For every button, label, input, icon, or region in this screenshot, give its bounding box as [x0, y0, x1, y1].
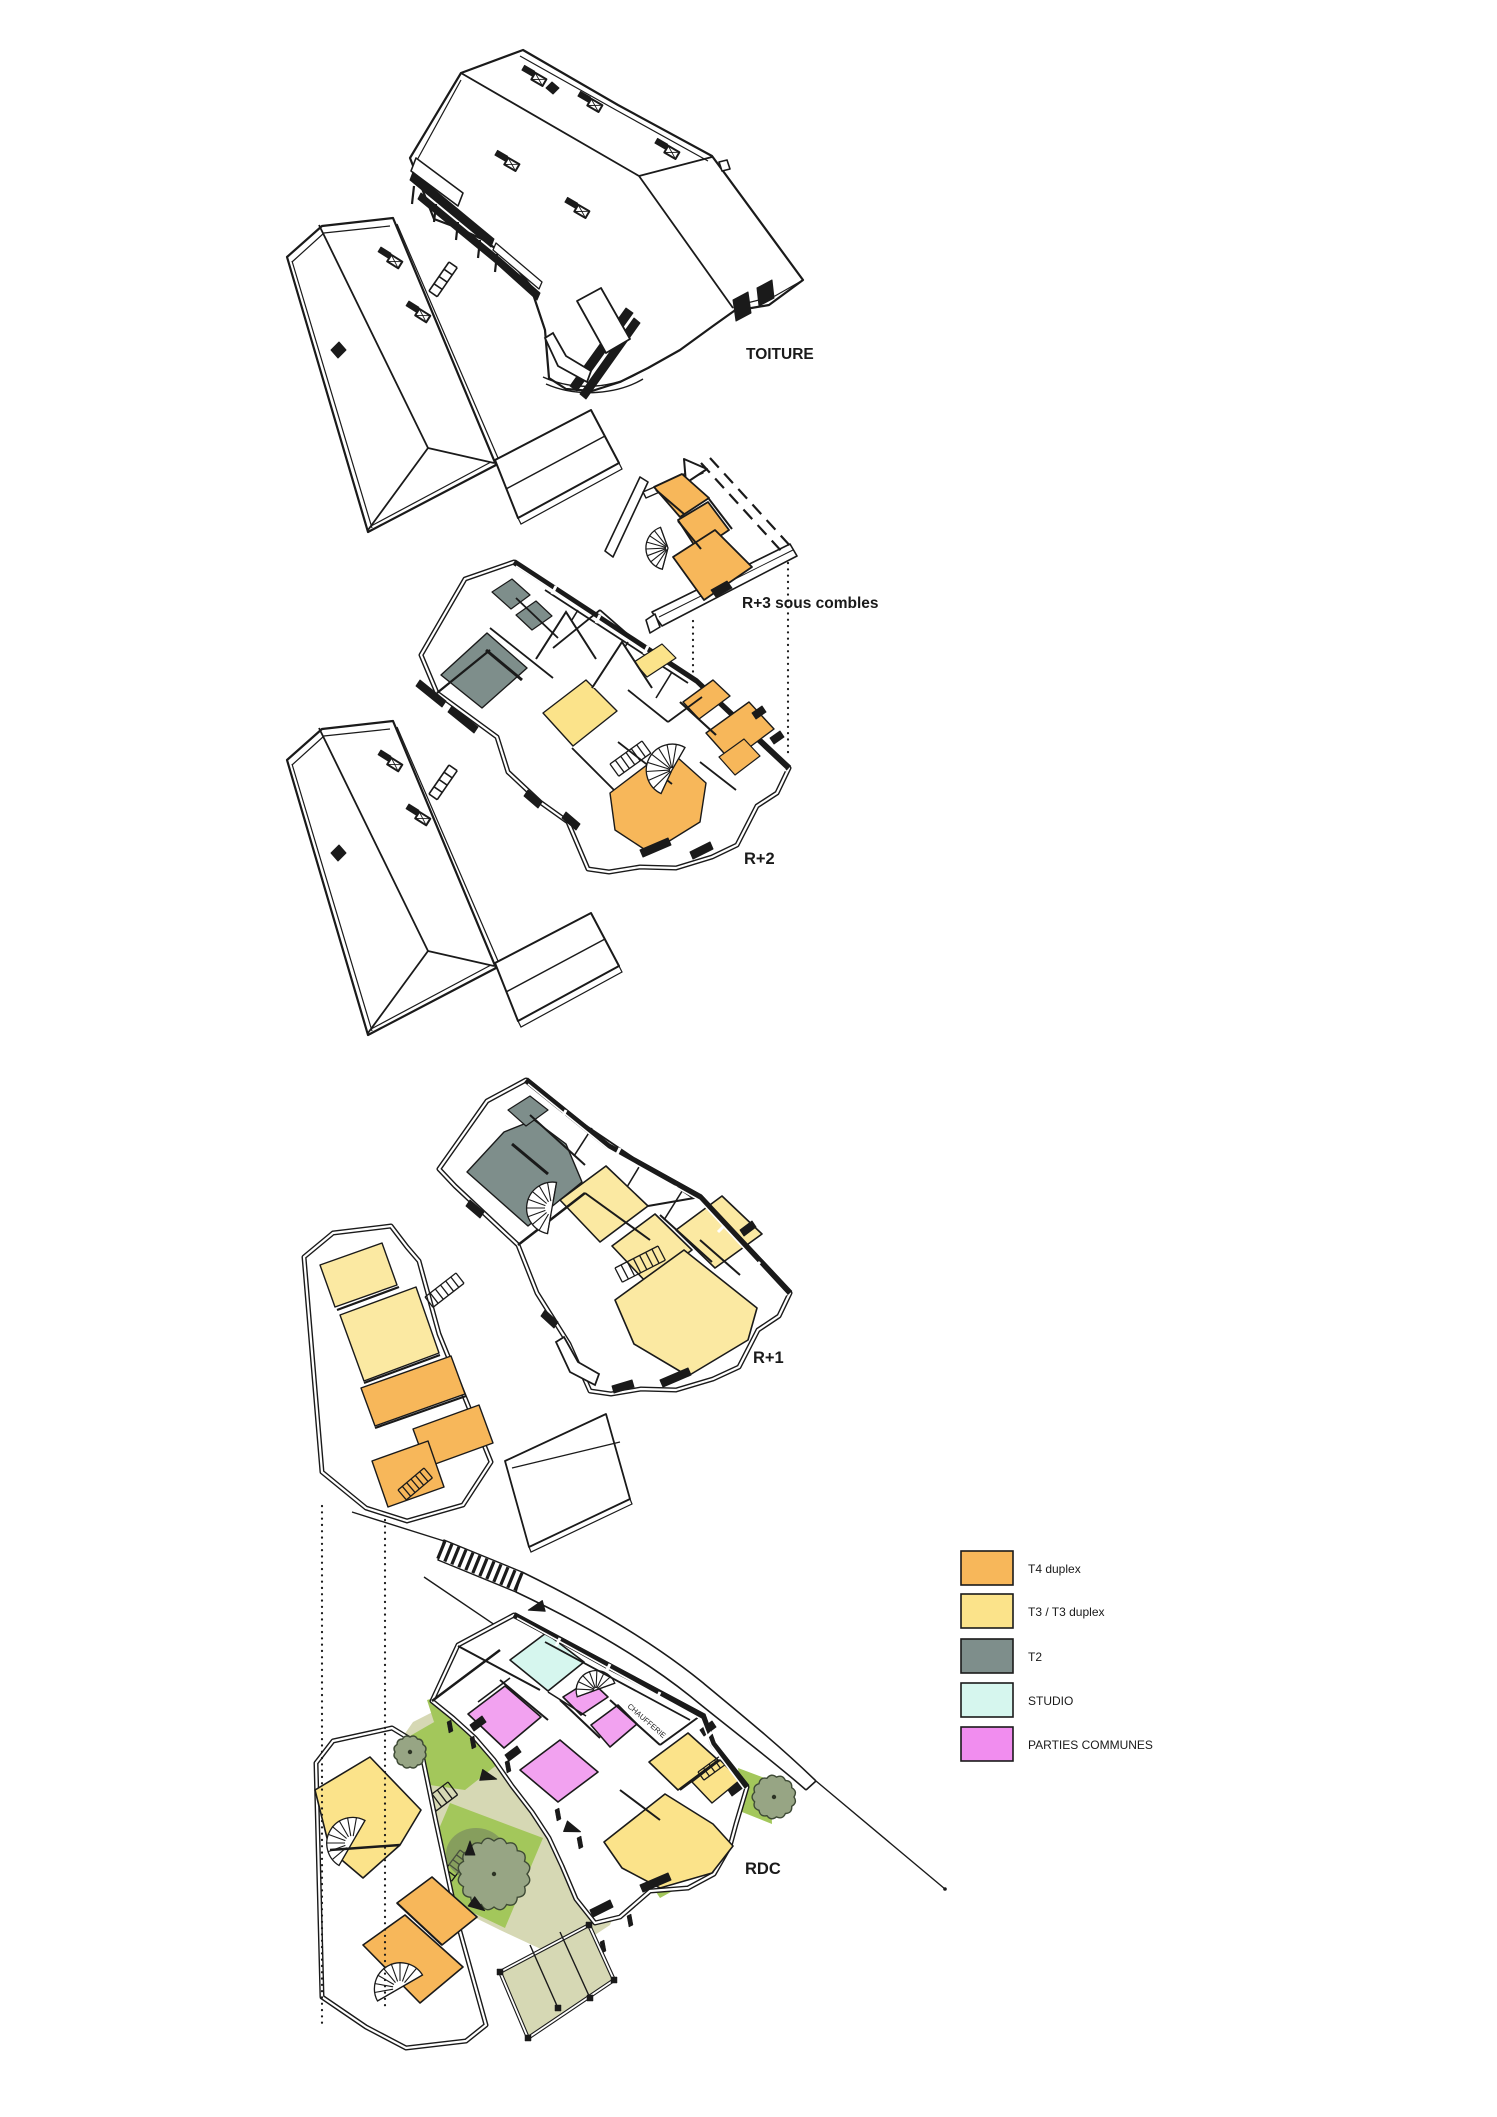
svg-text:R+2: R+2: [744, 850, 775, 868]
svg-text:RDC: RDC: [745, 1860, 781, 1878]
svg-text:PARTIES COMMUNES: PARTIES COMMUNES: [1028, 1738, 1153, 1752]
svg-text:T3 / T3 duplex: T3 / T3 duplex: [1028, 1605, 1105, 1619]
svg-text:TOITURE: TOITURE: [746, 346, 814, 363]
svg-text:T4 duplex: T4 duplex: [1028, 1562, 1081, 1576]
svg-text:STUDIO: STUDIO: [1028, 1694, 1073, 1708]
svg-text:R+1: R+1: [753, 1349, 784, 1367]
svg-text:T2: T2: [1028, 1650, 1042, 1664]
svg-text:R+3 sous combles: R+3 sous combles: [742, 595, 879, 612]
